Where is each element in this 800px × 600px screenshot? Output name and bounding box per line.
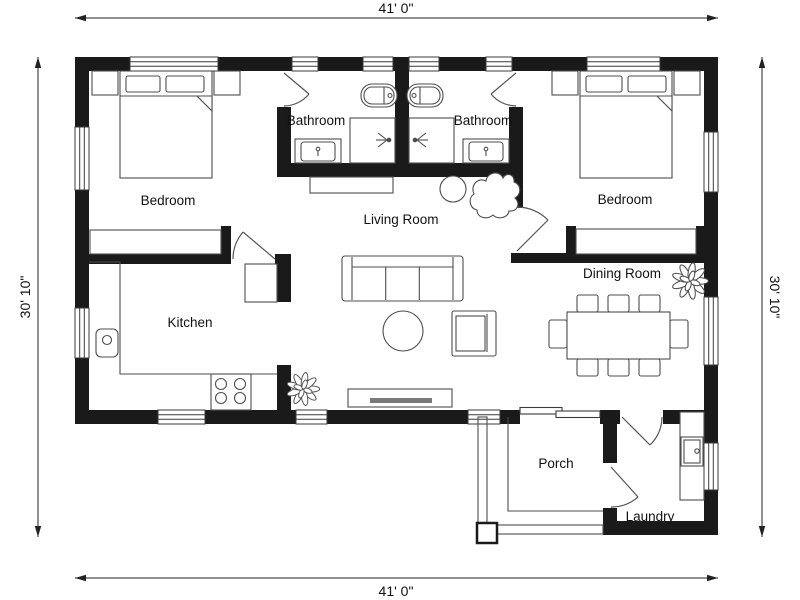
door-bathroom-right [491, 73, 516, 106]
kitchen-sink-icon [96, 329, 118, 357]
room-label-porch: Porch [538, 456, 573, 471]
bed-right-icon [580, 71, 672, 178]
room-label-bathroom-left: Bathroom [287, 113, 346, 128]
bed-left-icon [120, 71, 212, 178]
plant-icon [286, 372, 319, 406]
sideboard-icon [310, 177, 393, 193]
room-label-bedroom-right: Bedroom [598, 192, 653, 207]
sliding-door-icon [520, 408, 600, 418]
door-laundry-top [622, 417, 662, 445]
window-icon [587, 57, 660, 71]
coffee-table-icon [383, 311, 423, 351]
armchair-icon [452, 311, 496, 356]
window-icon [363, 57, 393, 71]
dimension-bottom: 41' 0" [75, 575, 718, 599]
shower-icon [409, 118, 454, 163]
door-dining-room [517, 207, 548, 251]
sofa-icon [342, 256, 463, 301]
tv-console-icon [348, 389, 452, 407]
nightstand-icon [552, 71, 578, 95]
door-laundry-porch [611, 467, 638, 507]
sink-icon [463, 139, 509, 163]
sink-icon [295, 139, 341, 163]
door-bedroom-left [233, 232, 275, 259]
dimension-label-bottom: 41' 0" [379, 583, 414, 599]
washer-icon [681, 437, 703, 466]
room-label-living-room: Living Room [363, 212, 438, 227]
dimension-top: 41' 0" [75, 0, 718, 21]
nightstand-icon [92, 71, 118, 95]
window-icon [704, 297, 718, 365]
nightstand-icon [214, 71, 240, 95]
porch-railing [477, 417, 603, 543]
window-icon [704, 132, 718, 192]
window-icon [75, 308, 89, 358]
window-icon [130, 57, 218, 71]
plant-blob-icon [470, 173, 520, 218]
window-icon [486, 57, 512, 71]
room-label-dining-room: Dining Room [583, 266, 661, 281]
window-icon [292, 57, 318, 71]
wardrobe-icon [576, 229, 696, 254]
dimension-label-top: 41' 0" [379, 0, 414, 16]
floor-plan-canvas: Bedroom Bathroom Bathroom Bedroom Living… [0, 0, 800, 600]
side-table-icon [440, 176, 466, 202]
plant-icon [672, 262, 709, 299]
dimension-left: 30' 10" [17, 57, 41, 537]
stove-icon [211, 374, 251, 410]
window-icon [158, 410, 205, 424]
dimension-label-left: 30' 10" [17, 276, 33, 319]
window-icon [296, 410, 327, 424]
floor-plan-drawing: Bedroom Bathroom Bathroom Bedroom Living… [0, 0, 800, 600]
dining-set-icon [549, 295, 688, 376]
door-bathroom-left [284, 73, 309, 106]
shower-icon [350, 118, 395, 163]
room-label-kitchen: Kitchen [167, 315, 212, 330]
wardrobe-icon [90, 230, 221, 254]
window-icon [75, 127, 89, 190]
nightstand-icon [674, 71, 700, 95]
room-label-laundry: Laundry [626, 509, 675, 524]
dimension-right: 30' 10" [759, 57, 783, 537]
room-label-bedroom-left: Bedroom [141, 193, 196, 208]
bathtub-icon [361, 84, 397, 107]
bathtub-icon [407, 84, 443, 107]
dimension-label-right: 30' 10" [767, 276, 783, 319]
window-icon [704, 443, 718, 490]
window-icon [409, 57, 439, 71]
room-label-bathroom-right: Bathroom [454, 113, 513, 128]
